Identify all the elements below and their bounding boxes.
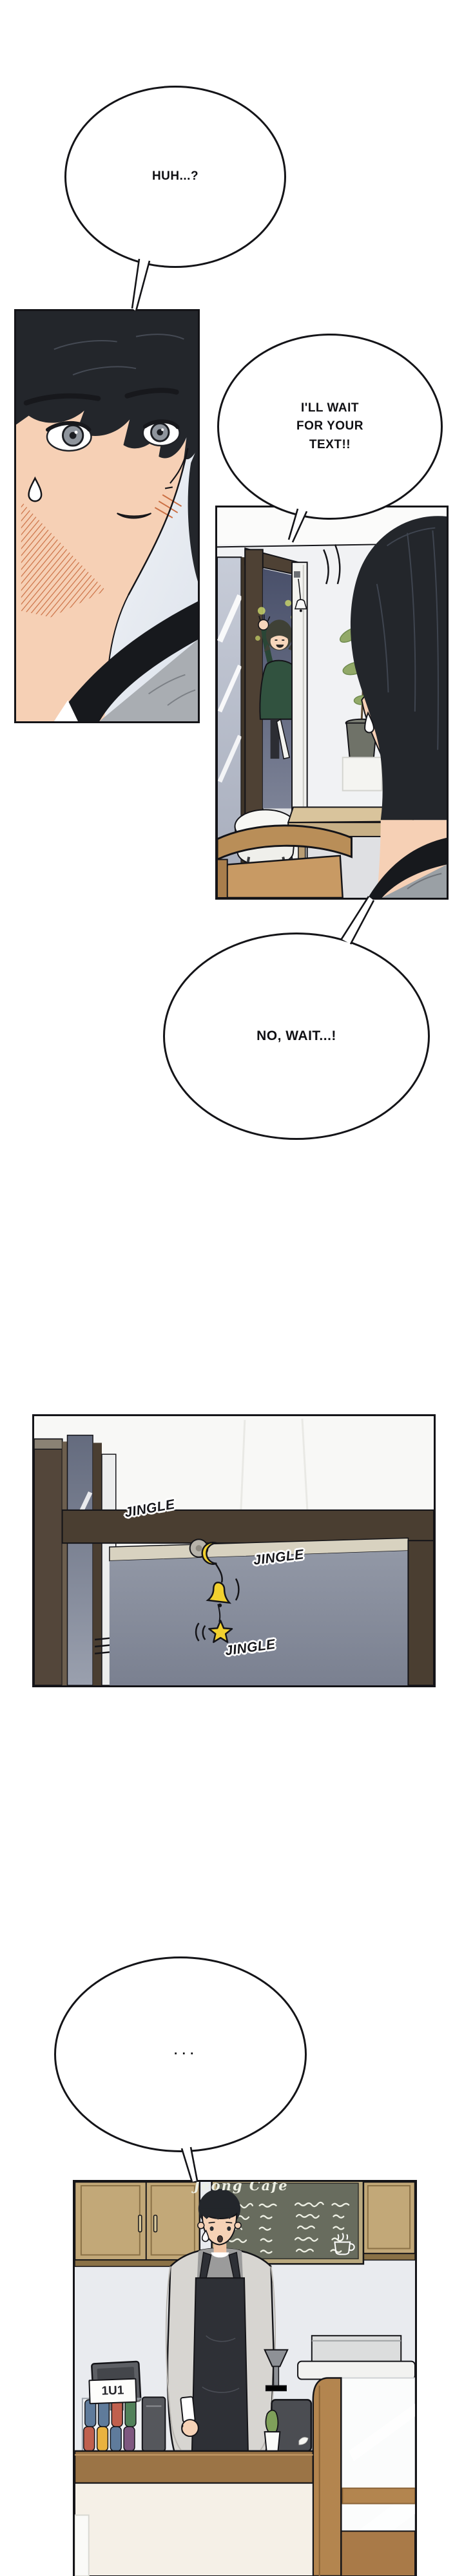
display-base: [341, 2531, 415, 2576]
speech-bubble-tail: [122, 253, 161, 317]
speech-text: · · ·: [166, 2045, 195, 2064]
register-sign: 1U1: [88, 2378, 137, 2405]
doorway-illustration: [217, 507, 447, 898]
counter: [75, 2451, 313, 2576]
left-door-frame: [34, 1439, 63, 1685]
cabinet-handle: [139, 2215, 142, 2232]
right-eye: [143, 420, 180, 446]
upper-cabinet-right: [363, 2182, 415, 2260]
menu-stand: [75, 2515, 89, 2576]
coffee-machine: [312, 2336, 401, 2363]
pastry-display-case: [341, 2378, 415, 2576]
speech-bubble-huh: HUH...?: [64, 86, 286, 268]
right-door-frame: [408, 1540, 434, 1685]
door-glass: [110, 1551, 409, 1685]
speech-text: NO, WAIT...!: [256, 1026, 336, 1046]
door-bracket: [294, 571, 300, 578]
inner-frame-strip: [93, 1443, 102, 1685]
comic-panel-cafe-counter: Jeong Cafe 1U1: [73, 2180, 417, 2576]
white-card: [180, 2396, 195, 2422]
speech-bubble-tail: [175, 2145, 204, 2186]
display-case-top: [298, 2362, 415, 2380]
speech-bubble-silence: · · ·: [54, 1956, 307, 2152]
comic-panel-door-jingle: JINGLE JINGLE JINGLE: [32, 1414, 436, 1687]
upper-cabinet-left: [75, 2182, 200, 2266]
comic-panel-doorway: [215, 506, 449, 900]
speech-bubble-tail: [282, 506, 312, 545]
comic-page: HUH...?: [0, 0, 464, 2576]
plant-stand: [343, 757, 382, 790]
hand: [182, 2420, 198, 2436]
cabinet-handle: [154, 2215, 157, 2232]
syrup-bottles: [82, 2398, 142, 2451]
apron: [192, 2278, 248, 2451]
door-top-frame: [63, 1510, 434, 1543]
eye: [227, 2226, 231, 2231]
speech-bubble-no-wait: NO, WAIT...!: [163, 933, 430, 1140]
speech-bubble-wait-for-text: I'LL WAIT FOR YOUR TEXT!!: [217, 334, 443, 520]
display-shelf: [342, 2488, 415, 2504]
comic-panel-face-closeup: [14, 309, 200, 723]
speech-text: I'LL WAIT FOR YOUR TEXT!!: [296, 399, 363, 455]
mouth: [217, 2236, 222, 2242]
speech-line: I'LL WAIT: [296, 399, 363, 418]
bangs: [201, 2209, 235, 2220]
speech-text: HUH...?: [152, 167, 198, 186]
face-closeup-illustration: [16, 311, 198, 721]
side-glass: [68, 1435, 93, 1685]
speech-line: FOR YOUR: [296, 417, 363, 436]
card-reader: [142, 2397, 166, 2451]
speech-bubble-tail: [334, 890, 379, 945]
wooden-pillar: [313, 2378, 342, 2576]
speech-line: TEXT!!: [296, 436, 363, 455]
eye: [210, 2226, 214, 2231]
left-eye: [47, 422, 92, 451]
